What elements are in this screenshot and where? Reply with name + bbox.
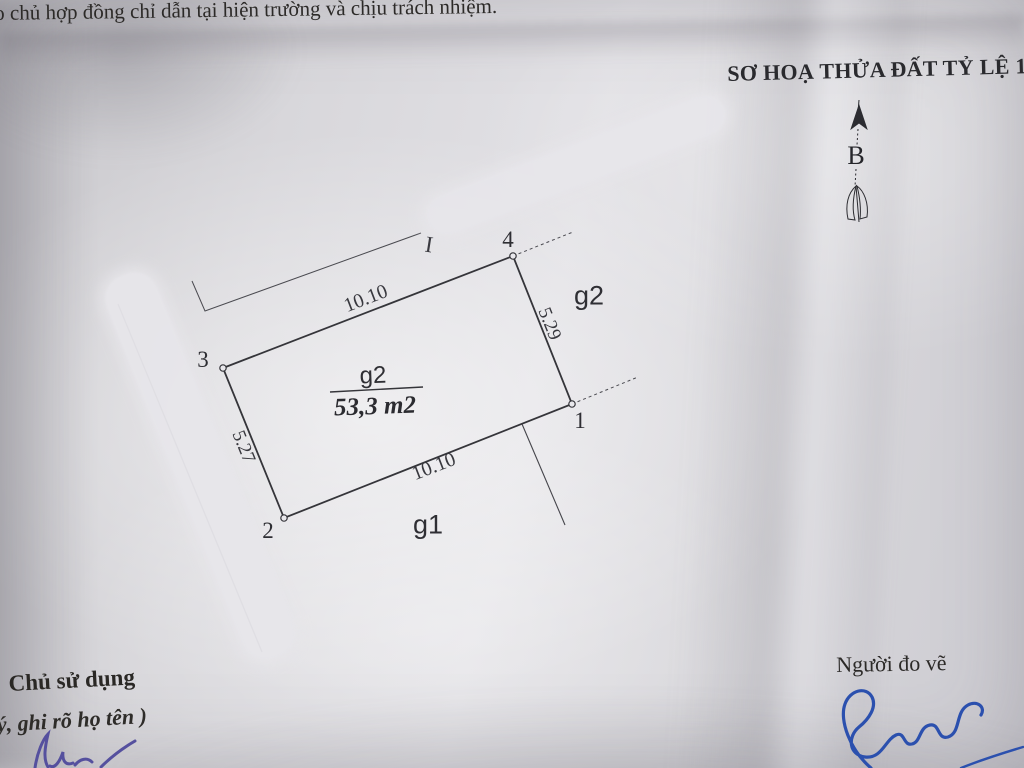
surveyor-signature — [843, 691, 1023, 768]
corner-point-1 — [569, 401, 575, 407]
neighbor-parcel-bottom-label: g1 — [413, 510, 443, 541]
corner-point-3 — [220, 365, 226, 371]
compass-label: B — [847, 141, 864, 171]
corner-label-4: 4 — [502, 227, 514, 253]
parcel-area-label: 53,3 m2 — [334, 392, 417, 423]
corner-label-2: 2 — [262, 518, 274, 544]
corner-label-1: 1 — [574, 408, 586, 434]
parcel-code-label: g2 — [359, 362, 387, 391]
surveyor-title: Người đo vẽ — [836, 650, 947, 678]
extension-line-from-1 — [572, 377, 638, 404]
parcel-outline — [223, 256, 572, 518]
g1-g2-divider-line — [522, 424, 565, 525]
neighbor-parcel-right-label: g2 — [574, 281, 604, 312]
corner-point-2 — [281, 515, 287, 521]
photographed-survey-document: o chủ hợp đồng chỉ dẫn tại hiện trường v… — [0, 0, 1024, 768]
corner-point-4 — [510, 253, 516, 259]
owner-signature-partial — [35, 734, 135, 768]
extension-line-from-4 — [513, 232, 573, 256]
corner-label-3: 3 — [197, 347, 209, 373]
